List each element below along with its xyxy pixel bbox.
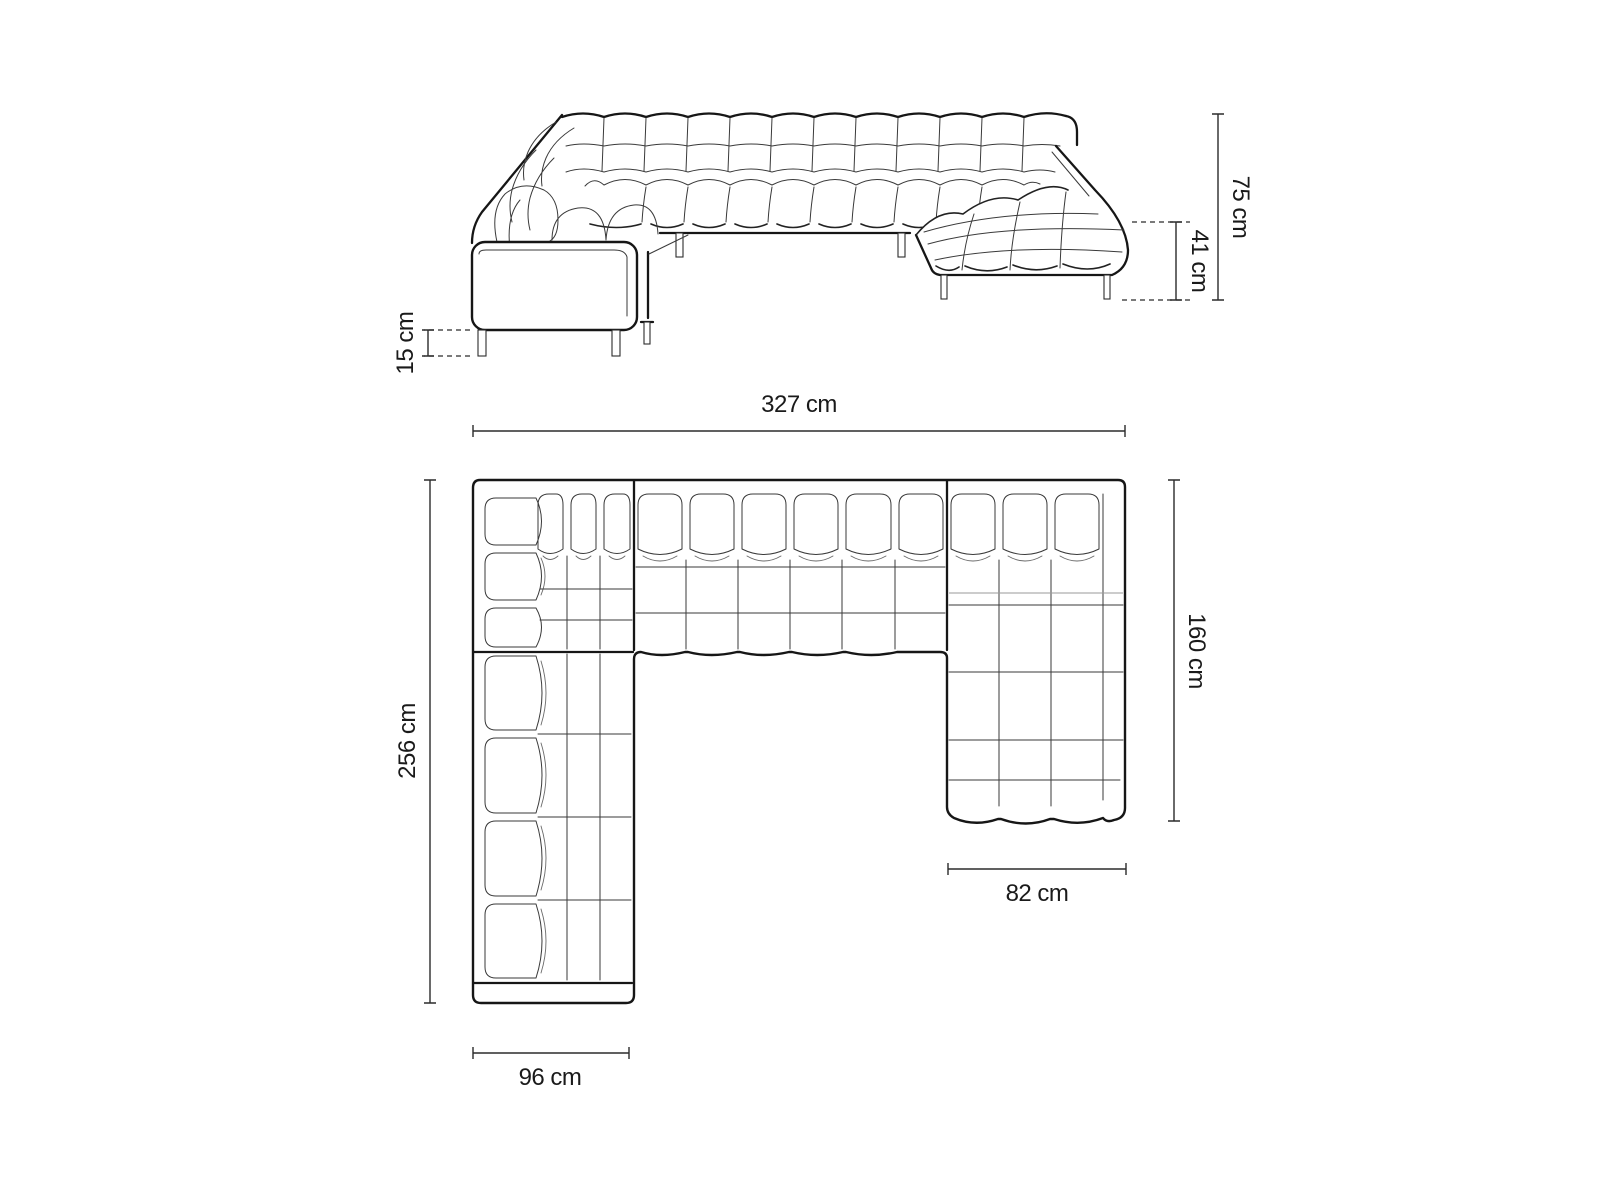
sofa-dimensions-diagram: 75 cm 41 cm 15 cm	[0, 0, 1600, 1200]
dim-seat-height-label: 41 cm	[1186, 230, 1213, 293]
dim-left-module-width: 96 cm	[473, 1047, 629, 1091]
sofa-leg	[644, 322, 650, 344]
dim-total-width-label: 327 cm	[761, 391, 837, 418]
dim-left-module-width-label: 96 cm	[519, 1064, 582, 1091]
chaise-body-fill	[916, 187, 1128, 275]
dim-chaise-width-label: 82 cm	[1006, 880, 1069, 907]
dim-total-width: 327 cm	[473, 391, 1125, 437]
dim-seat-height: 41 cm	[1122, 222, 1213, 300]
corner-back-cushion-large	[495, 186, 558, 242]
sofa-back-right-corner	[1066, 116, 1077, 145]
diagram-canvas: 75 cm 41 cm 15 cm	[0, 0, 1600, 1200]
dim-leg-height: 15 cm	[392, 312, 470, 375]
sofa-leg	[941, 275, 947, 299]
dim-left-depth: 256 cm	[394, 480, 436, 1003]
dim-right-depth: 160 cm	[1168, 480, 1210, 821]
seat-cushion-tops	[585, 180, 1040, 187]
dim-total-height: 75 cm	[1212, 114, 1254, 300]
sofa-back-top-edge	[562, 113, 1066, 117]
dim-leg-height-label: 15 cm	[392, 312, 419, 375]
dim-total-height-label: 75 cm	[1227, 176, 1254, 239]
elevation-view: 75 cm 41 cm 15 cm	[392, 113, 1254, 374]
dim-left-depth-label: 256 cm	[394, 703, 421, 779]
sofa-back-left-edge	[472, 115, 562, 243]
back-bottom-seam	[566, 169, 1055, 172]
dim-right-depth-label: 160 cm	[1183, 613, 1210, 689]
dim-chaise-width: 82 cm	[948, 863, 1126, 907]
sofa-leg	[1104, 275, 1110, 299]
sofa-leg	[676, 233, 683, 257]
plan-view: 327 cm 256 cm 160 cm 96 cm 82 cm	[394, 391, 1210, 1091]
sofa-leg	[478, 330, 486, 356]
sofa-leg	[898, 233, 905, 257]
left-section-front-face	[641, 252, 653, 322]
sofa-leg	[612, 330, 620, 356]
armrest-block	[472, 242, 637, 330]
plan-outline	[473, 480, 1125, 1003]
seat-cushion-seams	[642, 187, 982, 222]
